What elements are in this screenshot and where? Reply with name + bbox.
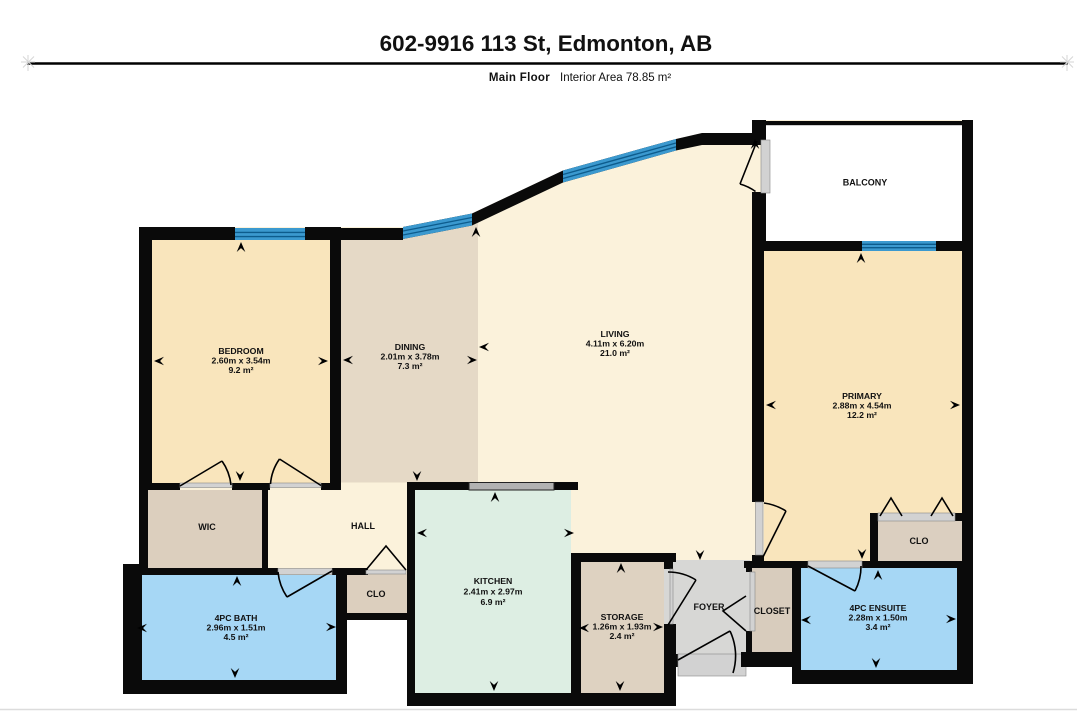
svg-text:Main Floor: Main Floor [489, 72, 550, 84]
svg-text:Interior Area 78.85 m²: Interior Area 78.85 m² [560, 72, 671, 84]
svg-text:BALCONY: BALCONY [843, 178, 888, 188]
svg-text:WIC: WIC [198, 522, 216, 532]
svg-text:FOYER: FOYER [693, 602, 725, 612]
svg-text:CLO: CLO [910, 536, 929, 546]
svg-text:CLOSET: CLOSET [754, 606, 791, 616]
svg-text:CLO: CLO [367, 589, 386, 599]
svg-text:602-9916 113 St, Edmonton, AB: 602-9916 113 St, Edmonton, AB [380, 31, 713, 56]
svg-text:HALL: HALL [351, 521, 375, 531]
